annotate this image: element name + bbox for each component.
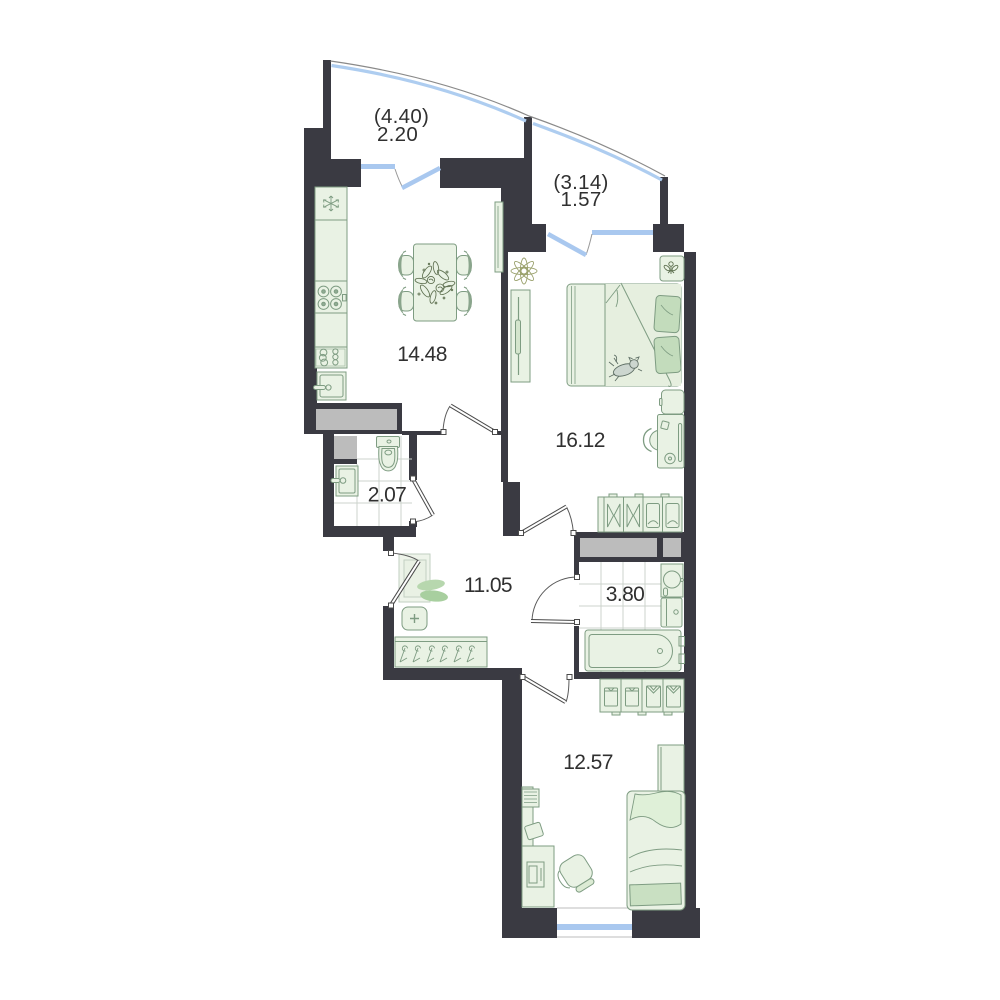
svg-text:1.57: 1.57 (560, 188, 601, 211)
svg-text:2.07: 2.07 (368, 484, 406, 507)
svg-text:14.48: 14.48 (397, 343, 447, 366)
svg-text:3.80: 3.80 (606, 583, 644, 606)
svg-text:2.20: 2.20 (377, 123, 418, 146)
svg-text:11.05: 11.05 (464, 574, 512, 597)
svg-text:12.57: 12.57 (563, 751, 613, 774)
svg-text:16.12: 16.12 (555, 429, 605, 452)
